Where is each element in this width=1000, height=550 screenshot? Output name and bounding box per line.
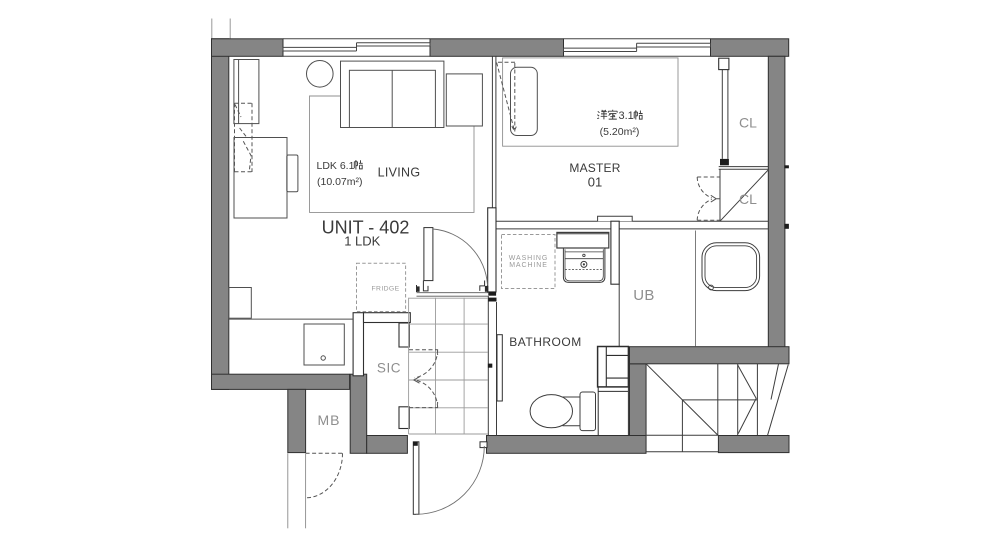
svg-text:(5.20m²): (5.20m²) — [600, 126, 640, 138]
svg-text:BATHROOM: BATHROOM — [509, 335, 581, 349]
svg-text:MB: MB — [318, 412, 341, 428]
svg-text:CL: CL — [739, 191, 757, 207]
svg-text:1 LDK: 1 LDK — [344, 234, 380, 249]
svg-text:SIC: SIC — [377, 361, 401, 376]
svg-text:UB: UB — [633, 287, 654, 304]
svg-text:MACHINE: MACHINE — [509, 262, 548, 269]
svg-text:FRIDGE: FRIDGE — [371, 285, 399, 292]
svg-text:3.1: 3.1 — [619, 110, 634, 122]
svg-text:LIVING: LIVING — [378, 166, 421, 180]
svg-text:01: 01 — [588, 175, 602, 190]
svg-text:MASTER: MASTER — [569, 161, 620, 175]
svg-text:LDK 6.1: LDK 6.1 — [317, 160, 355, 172]
svg-text:CL: CL — [739, 115, 757, 131]
svg-text:(10.07m²): (10.07m²) — [317, 176, 363, 188]
